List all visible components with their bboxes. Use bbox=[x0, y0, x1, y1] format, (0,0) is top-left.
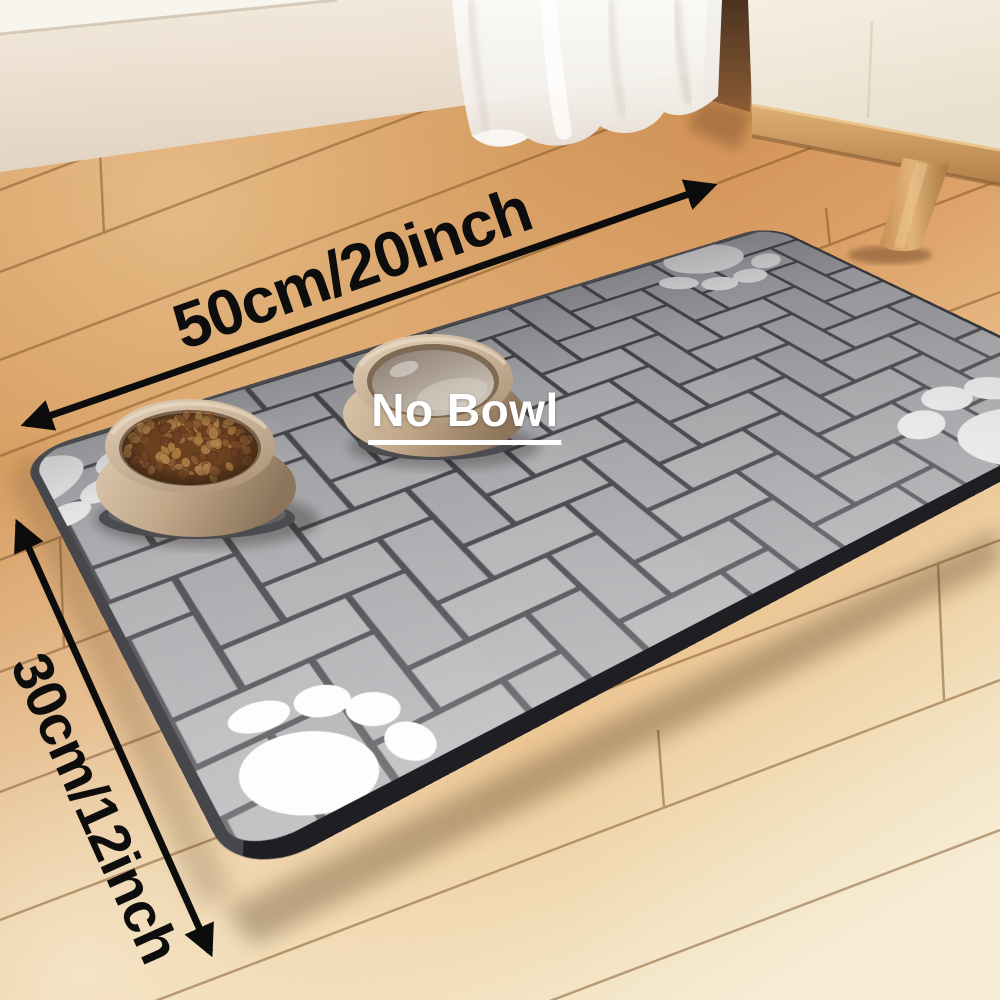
product-photo: 50cm/20inch 30cm/12inch No Bowl bbox=[0, 0, 1000, 1000]
no-bowl-label: No Bowl bbox=[368, 383, 561, 445]
